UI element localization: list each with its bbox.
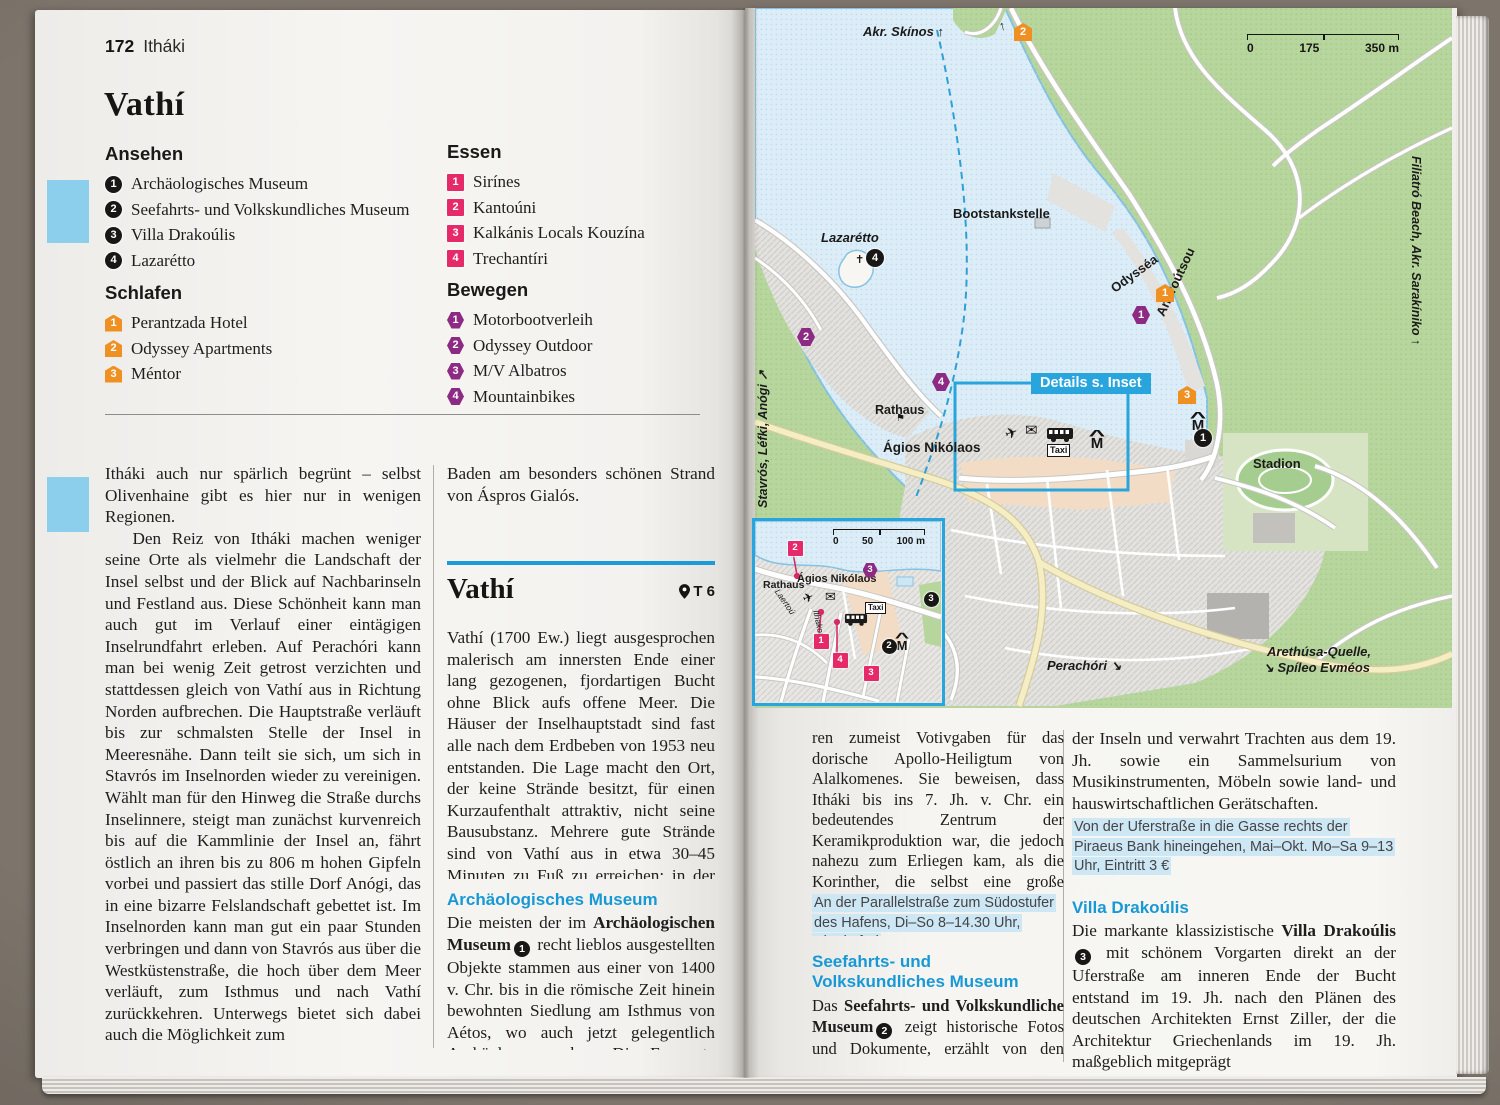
subheading-seefahrtsmuseum: Seefahrts- und Volkskundliches Museum [812,952,1052,992]
legend-item: 2Odyssey Apartments [105,339,435,359]
inline-sight-badge: 2 [876,1023,892,1039]
inline-sight-badge: 3 [1075,949,1091,965]
body-column-1: ren zumeist Votivgaben für das dorische … [812,728,1064,892]
legend-item: 1Archäologisches Museum [105,174,435,194]
legend-label: Kalkánis Locals Kouzína [473,223,645,243]
map-marker-move-4: 4 [932,373,950,391]
arrow-up-icon: ↑ [1409,339,1423,345]
legend-marker-sight-1: 1 [105,176,122,193]
blue-edge-tab [47,477,89,532]
map-marker-sight-2: 2 [882,639,897,654]
legend-item: 4Lazarétto [105,251,435,271]
bus-icon [845,614,867,623]
legend-item: 3Villa Drakoúlis [105,225,435,245]
mail-icon: ✉ [825,590,836,605]
map-label-filiatro: Filiatró Beach, Akr. Sarakíniko ↑ [1409,156,1423,345]
legend-item: 4Trechantíri [447,249,727,269]
paragraph: Den Reiz von Itháki machen weniger seine… [105,528,421,1046]
right-page: Akr. Skínos ↑ ↑ Bootstankstelle Lazarétt… [745,8,1457,1078]
map-label-stavros-road: Stavrós, Léfki, Anógi ↗ [755,370,770,508]
section-title: Vathí [447,573,514,606]
map-inset: Rathaus Ágios Nikólaos Laertoú Ithakoú ✈… [752,518,945,706]
practical-info: Von der Uferstraße in die Gasse rechts d… [1072,818,1396,880]
museum-icon: M [1088,436,1106,451]
map-marker-move-2: 2 [797,328,815,346]
bus-icon [1047,428,1073,439]
legend-label: Kantoúni [473,198,536,218]
map-marker-hotel-2: 2 [1014,23,1032,41]
legend-item: 2Odyssey Outdoor [447,336,727,356]
map-marker-food-2: 2 [788,541,803,556]
subheading-villa-drakoulis: Villa Drakoúlis [1072,898,1372,918]
legend-schlafen: Schlafen 1Perantzada Hotel2Odyssey Apart… [105,282,435,390]
page-stack-right [1456,16,1489,1074]
map-marker-move-1: 1 [1132,306,1150,324]
page-header: 172Itháki [105,36,185,57]
legend-label: Perantzada Hotel [131,313,248,333]
legend-heading: Essen [447,141,727,163]
legend-label: Sirínes [473,172,520,192]
legend-marker-sight-4: 4 [105,252,122,269]
arrow-up-icon: ↑ [937,24,944,39]
chapter-name: Itháki [143,36,185,56]
legend-item: 2Kantoúni [447,198,727,218]
map-label-bootstankstelle: Bootstankstelle [953,206,1050,221]
arrow-se-icon: ↘ [1263,660,1274,675]
map-marker-sight-4: 4 [866,249,884,267]
map-marker-hotel-3: 3 [1178,386,1196,404]
body-column-2-intro: Baden am besonders schönen Strand von Ás… [447,463,715,509]
map-label-perachori: Perachóri ↘ [1047,658,1122,674]
legend-label: Mountainbikes [473,387,575,407]
column-divider [433,465,434,1048]
left-page: 172Itháki Vathí Ansehen 1Archäologisches… [35,10,745,1078]
legend-label: M/V Albatros [473,361,567,381]
section-rule [447,561,715,565]
legend-heading: Ansehen [105,143,435,165]
map-label-spileo: ↘ Spíleo Evméos [1263,660,1370,676]
inline-sight-badge: 1 [514,941,530,957]
map-grid-ref: T 6 [679,583,715,600]
legend-item: 2Seefahrts- und Volkskundliches Museum [105,200,435,220]
map-marker-food-3: 3 [864,666,879,681]
legend-marker-sight-3: 3 [105,227,122,244]
legend-label: Odyssey Apartments [131,339,272,359]
map-label-agios-nikolaos: Ágios Nikólaos [883,440,981,455]
sub-paragraph: Das Seefahrts- und Volkskundliche Museum… [812,996,1064,1062]
legend-label: Odyssey Outdoor [473,336,592,356]
legend-label: Villa Drakoúlis [131,225,235,245]
legend-bewegen: Bewegen 1Motorbootverleih2Odyssey Outdoo… [447,279,727,412]
legend-marker-move-4: 4 [447,388,464,405]
legend-marker-move-1: 1 [447,312,464,329]
taxi-sign: Taxi [1047,444,1070,457]
legend-heading: Schlafen [105,282,435,304]
legend-item: 4Mountainbikes [447,387,727,407]
map-marker-sight-3: 3 [924,592,939,607]
book-photo: { "left_page": { "page_num": "172", "hea… [0,0,1500,1105]
map-label-arethousa: Arethúsa-Quelle, [1267,644,1371,659]
arrow-ne-icon: ↗ [756,370,770,380]
legend-item: 3M/V Albatros [447,361,727,381]
mail-icon: ✉ [1025,421,1038,439]
legend-marker-sight-2: 2 [105,201,122,218]
body-column-1: Itháki auch nur spärlich begrünt – selbs… [105,463,421,1051]
sub-paragraph: Die markante klassizistische Villa Drako… [1072,920,1396,1072]
page-stack-bottom [42,1077,1486,1094]
page-number: 172 [105,36,134,56]
practical-info: An der Parallelstraße zum Südostufer des… [812,894,1064,936]
map-marker-food-4: 4 [833,653,848,668]
church-icon: ✝ [855,253,864,266]
legend-label: Seefahrts- und Volkskundliches Museum [131,200,409,220]
details-inset-flag: Details s. Inset [1031,373,1151,394]
inset-label-agios: Ágios Nikólaos [797,573,876,585]
legend-heading: Bewegen [447,279,727,301]
legend-marker-hotel-3: 3 [105,366,122,383]
legend-marker-food-2: 2 [447,199,464,216]
legend-essen: Essen 1Sirínes2Kantoúni3Kalkánis Locals … [447,141,727,274]
section-heading-row: Vathí T 6 [447,573,715,606]
map-pin-icon [679,584,690,599]
legend-marker-hotel-1: 1 [105,315,122,332]
divider-rule [105,414,700,415]
sub-paragraph: Die meisten der im Archäologischen Museu… [447,912,715,1050]
section-paragraph: Vathí (1700 Ew.) liegt ausgesprochen mal… [447,627,715,879]
blue-edge-tab [47,180,89,243]
legend-marker-move-3: 3 [447,363,464,380]
map-label-stadion: Stadion [1253,456,1301,471]
legend-marker-food-4: 4 [447,250,464,267]
legend-label: Archäologisches Museum [131,174,308,194]
legend-marker-move-2: 2 [447,337,464,354]
map-label-lazaretto: Lazarétto [821,230,879,245]
legend-item: 1Sirínes [447,172,727,192]
legend-ansehen: Ansehen 1Archäologisches Museum2Seefahrt… [105,143,435,276]
arrow-se-icon: ↘ [1111,658,1122,673]
legend-label: Méntor [131,364,181,384]
map-scale-bar: 0 175 350 m [1247,34,1399,55]
flag-icon: ⚑ [896,413,905,424]
paragraph: Itháki auch nur spärlich begrünt – selbs… [105,463,421,528]
legend-marker-food-1: 1 [447,174,464,191]
map-marker-sight-1: 1 [1194,429,1212,447]
legend-label: Motorbootverleih [473,310,593,330]
taxi-sign: Taxi [865,602,886,614]
page-title: Vathí [104,86,185,124]
subheading-archaeologisches-museum: Archäologisches Museum [447,890,715,910]
inset-markers-layer: 2331432 [755,521,941,702]
legend-item: 3Méntor [105,364,435,384]
legend-label: Trechantíri [473,249,548,269]
inset-scale-bar: 0 50 100 m [833,529,925,547]
map-marker-food-1: 1 [814,634,829,649]
legend-marker-hotel-2: 2 [105,340,122,357]
legend-item: 3Kalkánis Locals Kouzína [447,223,727,243]
legend-marker-food-3: 3 [447,225,464,242]
map-label-cape: Akr. Skínos ↑ [863,24,944,39]
legend-label: Lazarétto [131,251,195,271]
body-column-2: der Inseln und verwahrt Trachten aus dem… [1072,728,1396,816]
legend-item: 1Perantzada Hotel [105,313,435,333]
legend-item: 1Motorbootverleih [447,310,727,330]
